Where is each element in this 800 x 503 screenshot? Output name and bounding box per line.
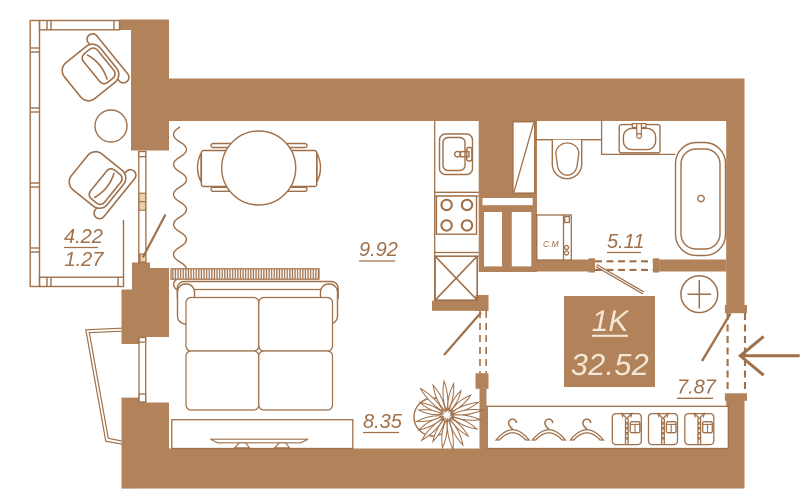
svg-text:4.22: 4.22 [64,226,103,248]
svg-text:7.87: 7.87 [677,377,717,399]
svg-text:1.27: 1.27 [65,249,105,271]
svg-text:5.11: 5.11 [607,231,644,253]
svg-text:1K: 1K [592,305,631,338]
svg-text:C.M: C.M [543,239,560,249]
svg-text:32.52: 32.52 [571,348,649,382]
svg-text:8.35: 8.35 [363,411,403,433]
svg-text:9.92: 9.92 [359,239,398,261]
